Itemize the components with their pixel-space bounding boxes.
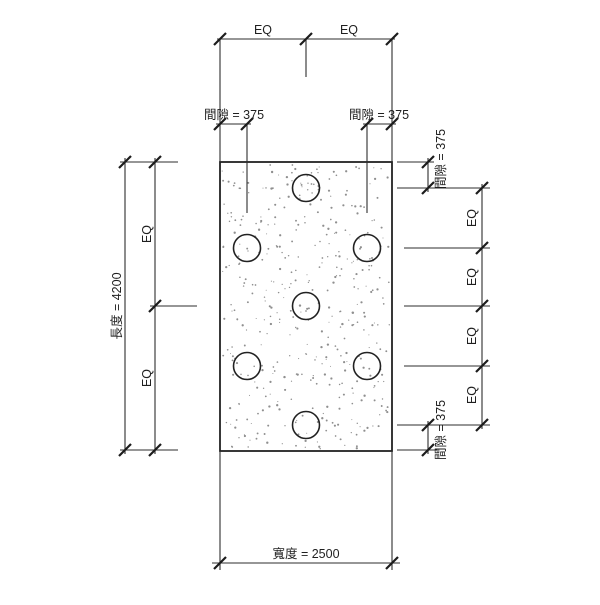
opening-circle	[293, 175, 320, 202]
dim-label-width: 寬度 = 2500	[272, 546, 339, 561]
opening-circle	[234, 353, 261, 380]
dim-label-right-eq-4: EQ	[465, 386, 479, 404]
slab-outline	[220, 162, 392, 451]
slab-openings	[234, 175, 381, 439]
dim-label-right-eq-2: EQ	[465, 268, 479, 286]
opening-circle	[293, 293, 320, 320]
dim-label-top-eq-right: EQ	[340, 23, 358, 37]
dim-label-right-eq-3: EQ	[465, 327, 479, 345]
opening-circle	[354, 353, 381, 380]
dim-label-left-eq-lower: EQ	[140, 369, 154, 387]
dimension-ticks	[119, 33, 488, 569]
dim-label-left-eq-upper: EQ	[140, 225, 154, 243]
opening-circle	[293, 412, 320, 439]
dim-label-top-gap-right: 間隙 = 375	[349, 108, 409, 122]
dim-label-right-gap-bottom: 間隙 = 375	[434, 400, 448, 460]
technical-drawing: EQ EQ 間隙 = 375 間隙 = 375 長度 = 4200 EQ EQ …	[0, 0, 600, 600]
dimension-lines	[120, 39, 490, 570]
dim-label-right-eq-1: EQ	[465, 209, 479, 227]
dimension-labels: EQ EQ 間隙 = 375 間隙 = 375 長度 = 4200 EQ EQ …	[109, 23, 479, 561]
drawing-canvas: EQ EQ 間隙 = 375 間隙 = 375 長度 = 4200 EQ EQ …	[0, 0, 600, 600]
dim-label-right-gap-top: 間隙 = 375	[434, 129, 448, 189]
dim-label-top-gap-left: 間隙 = 375	[204, 108, 264, 122]
dim-label-top-eq-left: EQ	[254, 23, 272, 37]
opening-circle	[354, 235, 381, 262]
dim-label-length: 長度 = 4200	[109, 272, 124, 339]
